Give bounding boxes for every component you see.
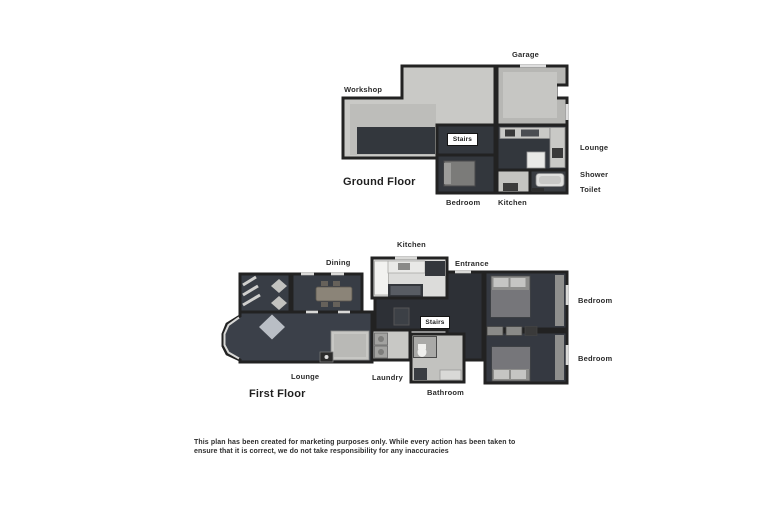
label-toilet: Toilet bbox=[580, 185, 601, 194]
bedroom-top-light-strip bbox=[555, 275, 564, 326]
ground-floor-plan bbox=[343, 65, 568, 193]
garage-window-top bbox=[520, 65, 546, 68]
garage-inner-floor bbox=[503, 72, 557, 118]
dining-window-2 bbox=[331, 273, 344, 276]
label-bathroom: Bathroom bbox=[427, 388, 464, 397]
vanity-ground bbox=[532, 188, 544, 192]
stairs-box-ground: Stairs bbox=[447, 133, 478, 146]
dining-window-1 bbox=[301, 273, 314, 276]
label-lounge-first: Lounge bbox=[291, 372, 319, 381]
label-kitchen-first: Kitchen bbox=[397, 240, 426, 249]
label-entrance: Entrance bbox=[455, 259, 489, 268]
garage-window-right bbox=[566, 104, 569, 120]
bathtub-icon bbox=[536, 174, 564, 187]
floor-plans-graphic bbox=[0, 0, 768, 512]
ground-floor-title: Ground Floor bbox=[343, 176, 416, 188]
floorplan-page: Garage Workshop Lounge Shower Toilet Bed… bbox=[0, 0, 768, 512]
first-floor-title: First Floor bbox=[249, 388, 306, 400]
dining-opening-2 bbox=[338, 311, 350, 314]
label-bedroom-ground: Bedroom bbox=[446, 198, 480, 207]
dining-opening-1 bbox=[306, 311, 318, 314]
bedroom-top-window bbox=[566, 285, 569, 305]
label-garage: Garage bbox=[512, 50, 539, 59]
bed-bottom bbox=[492, 347, 530, 381]
hall-closet bbox=[394, 308, 409, 325]
label-shower: Shower bbox=[580, 170, 608, 179]
sofa bbox=[331, 331, 369, 360]
kitchen-window-first bbox=[395, 257, 417, 260]
entrance-door-gap bbox=[455, 271, 471, 274]
label-kitchen-ground: Kitchen bbox=[498, 198, 527, 207]
fireplace-icon bbox=[320, 352, 333, 362]
workshop-dark-floor bbox=[357, 127, 435, 154]
kitchen-appliance bbox=[503, 183, 518, 191]
stairs-box-first: Stairs bbox=[420, 316, 450, 329]
disclaimer-text: This plan has been created for marketing… bbox=[194, 438, 539, 456]
disclaimer-line-1: This plan has been created for marketing… bbox=[194, 438, 539, 447]
label-dining: Dining bbox=[326, 258, 351, 267]
bed-top bbox=[491, 276, 530, 317]
bedroom-bottom-light-strip bbox=[555, 335, 564, 380]
label-lounge-ground: Lounge bbox=[580, 143, 608, 152]
bed-ground bbox=[444, 161, 475, 186]
first-floor-plan bbox=[223, 257, 568, 383]
label-laundry: Laundry bbox=[372, 373, 403, 382]
label-bedroom-top: Bedroom bbox=[578, 296, 612, 305]
wardrobes bbox=[487, 327, 537, 336]
label-bedroom-bottom: Bedroom bbox=[578, 354, 612, 363]
bedroom-bottom-window bbox=[566, 345, 569, 365]
label-workshop: Workshop bbox=[344, 85, 382, 94]
disclaimer-line-2: ensure that it is correct, we do not tak… bbox=[194, 447, 539, 456]
